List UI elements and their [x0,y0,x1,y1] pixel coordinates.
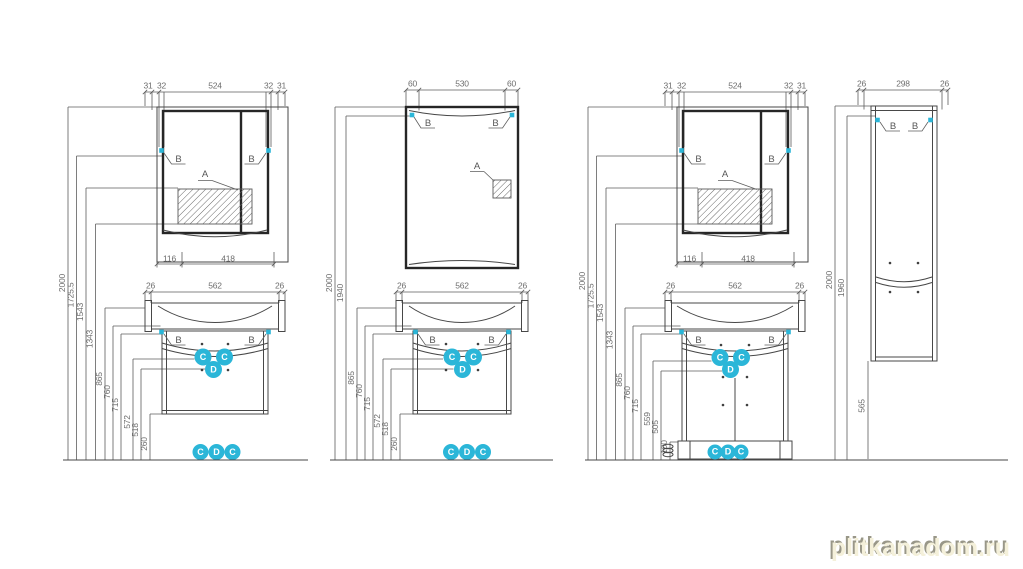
wall-bracket [522,301,529,332]
dim-label: 562 [208,281,222,291]
dim-label: 26 [518,281,528,291]
hinge-marker [928,118,933,123]
callout-b-label: B [695,154,701,165]
callout-a-leader [470,172,494,181]
circle-letter: C [480,447,487,457]
height-dim-label: 1940 [335,283,345,302]
height-dim-label: 1725.5 [66,282,76,307]
dim-label: 524 [728,81,742,91]
p3-basin-rim-curve [677,306,793,323]
installation-drawing-page: 2000 1725.5 1543 1343 865 760 715 572 51… [0,0,1023,569]
fitting-dot [227,343,230,346]
hinge-marker [506,330,511,335]
callout-b-label: B [492,118,498,129]
fitting-dot [201,369,204,372]
fitting-dot [722,376,725,379]
p1-basin-rim-curve [158,306,272,323]
callout-b-label: B [248,154,254,165]
p3-vanity-top-dim-lines [663,290,807,303]
p1-vanity: 26 562 26 B B C C D [143,281,287,415]
fitting-dot [748,344,751,347]
p3-connection-zone-a [698,189,772,224]
hinge-marker [159,148,164,153]
dim-label: 116 [163,254,176,264]
mount-marker [410,113,415,118]
fitting-dot [201,343,204,346]
callout-b-label: B [425,118,431,129]
panel-2-mirror-with-vanity: 2000 1940 865 760 715 572 518 260 60 530… [324,79,553,461]
p3-vanity: 26 562 26 B B C C D [663,281,807,460]
watermark-text: plitkanadom.ru [831,534,1010,562]
dim-label: 418 [221,254,235,264]
p4-cabinet-body-lines [871,106,937,361]
fitting-dot [746,376,749,379]
circle-letter: C [712,447,719,457]
callout-b-label: B [912,121,918,132]
circle-letter: D [727,365,734,375]
circle-letter: C [448,447,455,457]
height-dim-label: 518 [130,423,140,437]
circle-letter: C [229,447,236,457]
p1-vanity-top-dim-lines [143,290,287,303]
circle-letter: C [200,352,207,362]
circle-letter: C [738,447,745,457]
height-dim-label: 1343 [605,330,615,349]
circle-letter: D [725,447,732,457]
wall-bracket [665,301,672,332]
p3-mirror-cabinet: 31 32 524 32 31 A B B 116 418 [663,81,808,268]
circle-letter: D [210,365,217,375]
furniture-installation-drawing: 2000 1725.5 1543 1343 865 760 715 572 51… [0,0,1023,569]
wall-bracket [279,301,286,332]
height-dim-label: 2000 [824,270,834,289]
fitting-dot [889,291,892,294]
circle-letter: C [738,353,745,363]
p1-mirror-cabinet: 31 32 524 32 31 A B B 116 418 [143,81,288,268]
circle-letter: C [197,447,204,457]
circle-letter: C [717,353,724,363]
height-dim-label: 865 [94,372,104,386]
callout-a-label: A [722,169,729,180]
p2-mirror-top-curve [409,111,515,117]
p1-height-dimension-stack: 2000 1725.5 1543 1343 865 760 715 572 51… [57,107,205,460]
fitting-dot [445,369,448,372]
p4-cabinet-body [871,106,937,361]
circle-letter: C [470,352,477,362]
panel-4-tall-cabinet: 2000 1960 26 298 26 B B 565 [824,79,950,461]
dim-label: 26 [666,281,676,291]
fitting-dot [477,343,480,346]
hinge-marker [786,330,791,335]
dim-label: 562 [728,281,742,291]
p4-height-dimension-stack: 2000 1960 [824,106,875,460]
p1-mirror-top-dim-lines [143,90,287,147]
height-dim-label: 565 [857,399,867,413]
p2-vanity-top-dim-lines [394,290,530,303]
fitting-dot [917,291,920,294]
height-dim-label: 760 [102,385,112,399]
p3-floor-callouts: C D C [708,445,749,460]
wall-bracket [145,301,152,332]
p2-washbasin-top [403,303,522,329]
dim-label: 32 [157,81,167,91]
callout-b-label: B [175,335,181,346]
p1-floor-callouts: C D C [193,444,241,460]
dim-label: 530 [455,79,469,89]
height-dim-label: 2000 [324,273,334,292]
watermark: plitkanadom.ru plitkanadom.ru [829,532,1010,562]
dim-label: 298 [896,79,910,89]
height-dim-label: 865 [614,373,624,387]
fitting-dot [722,404,725,407]
hinge-marker [786,148,791,153]
p2-vanity: 26 562 26 B B C C D [394,281,530,415]
hinge-marker [266,148,271,153]
height-dim-label: 505 [650,420,660,434]
callout-a-label: A [474,161,481,172]
fitting-dot [227,369,230,372]
dim-label: 26 [397,281,407,291]
p2-mirror-bottom-curve [409,261,515,265]
dim-label: 32 [264,81,274,91]
p2-height-dimension-stack: 2000 1940 865 760 715 572 518 260 [324,107,454,460]
mount-marker [510,113,515,118]
dim-label: 60 [507,79,517,89]
callout-b-label: B [488,335,494,346]
dim-label: 26 [146,281,156,291]
dim-label: 26 [940,79,950,89]
p3-washbasin-top [672,303,799,329]
circle-letter: D [213,447,220,457]
callout-b-label: B [175,154,181,165]
p1-connection-zone-a [178,189,252,224]
wall-bracket [799,301,806,332]
callout-a-leader [718,181,757,190]
dim-label: 32 [784,81,794,91]
dim-label: 31 [663,81,673,91]
callout-b-label: B [768,335,774,346]
callout-b-label: B [695,335,701,346]
fitting-dot [889,262,892,265]
fitting-dot [917,262,920,265]
height-dim-label: 1960 [836,278,846,297]
dim-label: 31 [277,81,287,91]
circle-letter: C [221,352,228,362]
p3-height-dim-lines [588,107,722,460]
panel-3-floor-vanity-mirror-cabinet: 2000 1725.5 1543 1343 865 760 715 559 50… [577,81,1008,461]
hinge-marker [413,330,418,335]
panel-1-wall-vanity-mirror-cabinet: 2000 1725.5 1543 1343 865 760 715 572 51… [57,81,308,461]
circle-letter: D [459,365,466,375]
height-dim-label: 715 [630,399,640,413]
circle-letter: D [464,447,471,457]
dim-label: 116 [683,254,696,264]
fitting-dot [445,343,448,346]
fitting-dot [720,344,723,347]
height-dim-label: 518 [380,422,390,436]
height-dim-label: 865 [346,371,356,385]
height-dim-label: 760 [354,384,364,398]
p2-height-dim-lines [335,107,454,460]
p2-basin-rim-curve [409,306,515,323]
p1-washbasin-top [152,303,279,329]
dim-label: 31 [797,81,807,91]
p2-mirror: 60 530 60 B B A [404,79,520,269]
p2-connection-zone-a [493,180,511,198]
wall-bracket [396,301,403,332]
hinge-marker [679,330,684,335]
hinge-marker [875,118,880,123]
p3-mirror-top-dim-lines [663,90,807,147]
height-dim-label: 1543 [75,302,85,321]
callout-b-label: B [429,335,435,346]
callout-b-leader [880,122,928,131]
height-dim-label: 715 [110,398,120,412]
dim-label: 31 [143,81,153,91]
fitting-dot [477,369,480,372]
callout-b-label: B [248,335,254,346]
height-dim-label: 1725.5 [586,283,596,308]
callout-a-label: A [202,169,209,180]
dim-label: 418 [741,254,755,264]
height-dim-label: 1343 [85,329,95,348]
p2-floor-callouts: C D C [443,444,491,460]
height-dim-label: 260 [139,437,149,451]
height-dim-label: 715 [362,397,372,411]
callout-b-label: B [890,121,896,132]
height-dim-label: 260 [389,437,399,451]
hinge-marker [266,330,271,335]
hinge-marker [159,330,164,335]
p4-drawer-front-curves [876,277,932,287]
dim-label: 26 [795,281,805,291]
hinge-marker [679,148,684,153]
dim-label: 524 [208,81,222,91]
fitting-dot [746,404,749,407]
height-dim-label: 760 [622,386,632,400]
dim-label: 32 [677,81,687,91]
dim-label: 26 [275,281,285,291]
dim-label: 60 [408,79,418,89]
callout-b-label: B [768,154,774,165]
dim-label: 562 [455,281,469,291]
p1-height-dim-lines [68,107,205,460]
circle-letter: C [449,352,456,362]
dim-label: 26 [857,79,867,89]
height-dim-label: 1543 [595,303,605,322]
